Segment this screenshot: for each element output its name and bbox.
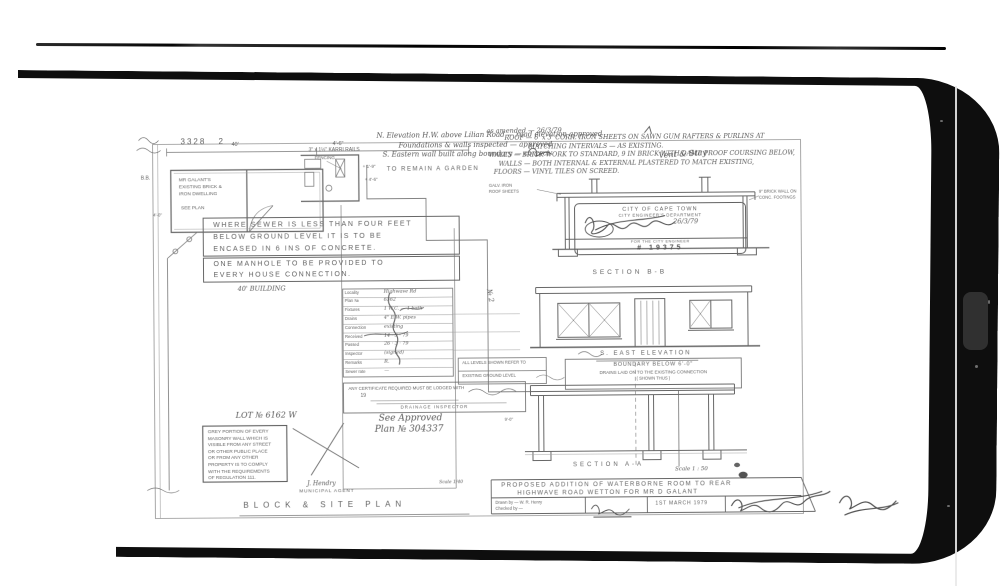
agent-name: J. Hendry xyxy=(307,481,336,488)
film-speck xyxy=(940,120,943,122)
scan-top-line xyxy=(36,43,946,50)
drawing-sheet: 3328 2 N. Elevation H.W. above Lilian Ro… xyxy=(136,121,819,540)
plan-dim-2: + 4'-6" xyxy=(365,177,378,182)
film-noise-patch xyxy=(963,292,988,350)
sheet-number-suffix: 2 xyxy=(218,137,223,146)
sewer-note-3: ENCASED IN 6 INS OF CONCRETE. xyxy=(213,245,377,254)
lot-marker: № 2 xyxy=(484,289,494,303)
form-value: 4" E.W. pipes xyxy=(384,315,416,321)
form-label: Connection xyxy=(345,326,366,331)
stamp-number: # 19375 xyxy=(575,244,745,253)
site-plan-scale: Scale 1/40 xyxy=(439,481,463,486)
stamp-department: CITY ENGINEER'S DEPARTMENT xyxy=(575,213,745,219)
building-note: 40' BUILDING xyxy=(238,286,286,294)
sewer-note-1: WHERE SEWER IS LESS THAN FOUR FEET xyxy=(213,221,412,231)
certificate-note: ANY CERTIFICATE REQUIRED MUST BE LODGED … xyxy=(348,385,464,391)
approved-plan-note-2: Plan № 304337 xyxy=(375,425,444,435)
agent-title: MUNICIPAL AGENT xyxy=(299,489,354,495)
certificate-year: 19 xyxy=(360,394,366,400)
approved-plan-note-1: See Approved xyxy=(379,414,443,424)
stamp-date: 26/3/79 xyxy=(673,218,698,225)
masonry-note-4: OR OTHER PUBLIC PLACE xyxy=(208,448,268,454)
drainage-inspector-label: DRAINAGE INSPECTOR xyxy=(401,404,469,410)
margin-dimension: 4'-0" xyxy=(153,212,162,217)
section-aa-scale: Scale 1 : 50 xyxy=(675,466,708,472)
levels-note-2: EXISTING GROUND LEVEL xyxy=(462,374,516,379)
sheet-number: 3328 xyxy=(180,137,206,146)
section-aa-label: SECTION A-A xyxy=(573,462,644,469)
film-scratch-line xyxy=(955,86,957,586)
masonry-note-2: MASONRY WALL WHICH IS xyxy=(208,435,268,441)
form-label: Sewer rate xyxy=(345,370,365,375)
form-label: Passed xyxy=(345,343,359,348)
form-label: Locality xyxy=(345,290,359,295)
form-value: 14 · 3 · 79 xyxy=(384,333,408,338)
masonry-note-5: OR FROM ANY OTHER xyxy=(208,455,258,461)
section-bb-label: SECTION B-B xyxy=(593,269,668,277)
roof-sheet-label-2: ROOF SHEETS xyxy=(489,189,519,194)
masonry-note-8: OF REGULATION 111. xyxy=(208,475,256,481)
section-aa-dim: 9'-0" xyxy=(505,418,513,423)
scanned-drawing-page: 3328 2 N. Elevation H.W. above Lilian Ro… xyxy=(0,0,1000,586)
form-value: 26 · 3 · 79 xyxy=(384,342,408,347)
karri-rails-sub: FENCING xyxy=(315,155,335,160)
manhole-note-2: EVERY HOUSE CONNECTION. xyxy=(214,271,352,280)
form-value: 6362 xyxy=(384,298,396,303)
site-plan-title: BLOCK & SITE PLAN xyxy=(243,500,406,510)
masonry-note-7: WITH THE REQUIREMENTS xyxy=(208,468,270,474)
garden-note: TO REMAIN A GARDEN xyxy=(387,166,480,174)
sewer-note-2: BELOW GROUND LEVEL IT IS TO BE xyxy=(213,233,382,242)
form-label: Remarks xyxy=(345,361,362,366)
manhole-note-1: ONE MANHOLE TO BE PROVIDED TO xyxy=(213,260,384,269)
room-label-1: MR GALANT'S xyxy=(179,178,211,184)
masonry-note-3: VISIBLE FROM ANY STREET xyxy=(208,442,271,448)
form-label: Drains xyxy=(345,317,357,322)
titleblock-checked-by: Checked by — xyxy=(495,507,523,512)
boundary-note-1: BOUNDARY BELOW 6'-0" xyxy=(568,361,738,369)
spec-line-5: FLOORS — VINYL TILES ON SCREED. xyxy=(494,169,620,177)
masonry-note-6: PROPERTY IS TO COMPLY xyxy=(208,462,268,468)
lot-note: LOT № 6162 W xyxy=(236,411,297,420)
form-value: Highwave Rd xyxy=(384,289,417,295)
form-label: Inspector xyxy=(345,352,362,357)
room-label-2: EXISTING BRICK & xyxy=(179,185,222,191)
room-note: SEE PLAN xyxy=(181,206,205,212)
dim-label-a: 40' xyxy=(232,142,239,148)
levels-note-1: ALL LEVELS SHOWN REFER TO xyxy=(462,361,526,366)
film-speck xyxy=(947,505,950,507)
plan-dim-1: + 1'-9" xyxy=(363,164,376,169)
form-label: Plan № xyxy=(345,299,359,304)
form-value: — xyxy=(384,368,389,373)
elevation-label: S. EAST ELEVATION xyxy=(600,350,691,358)
form-value: existing xyxy=(384,324,403,329)
wall-label-2: CONC. FOOTINGS xyxy=(759,196,796,201)
form-value: 1 W.C. — 1 bath xyxy=(384,307,423,313)
section-marker-bb: B.B. xyxy=(141,177,150,183)
form-label: Fixtures xyxy=(345,308,360,313)
approval-stamp: CITY OF CAPE TOWN CITY ENGINEER'S DEPART… xyxy=(574,202,746,255)
film-speck xyxy=(988,300,990,304)
form-value: (signed) xyxy=(384,351,404,356)
titleblock-date: 1ST MARCH 1979 xyxy=(655,501,708,507)
titleblock-line-2: HIGHWAVE ROAD WETTON FOR MR D GALANT xyxy=(517,488,698,496)
masonry-note-1: GREY PORTION OF EVERY xyxy=(208,429,269,435)
karri-rails-label: 3" x 1½" KARRI RAILS xyxy=(309,148,360,154)
film-speck xyxy=(975,365,978,368)
room-label-3: IRON DWELLING xyxy=(179,192,217,198)
frame-gap xyxy=(0,544,116,586)
form-label: Received xyxy=(345,334,363,339)
form-value: R. xyxy=(384,360,389,365)
